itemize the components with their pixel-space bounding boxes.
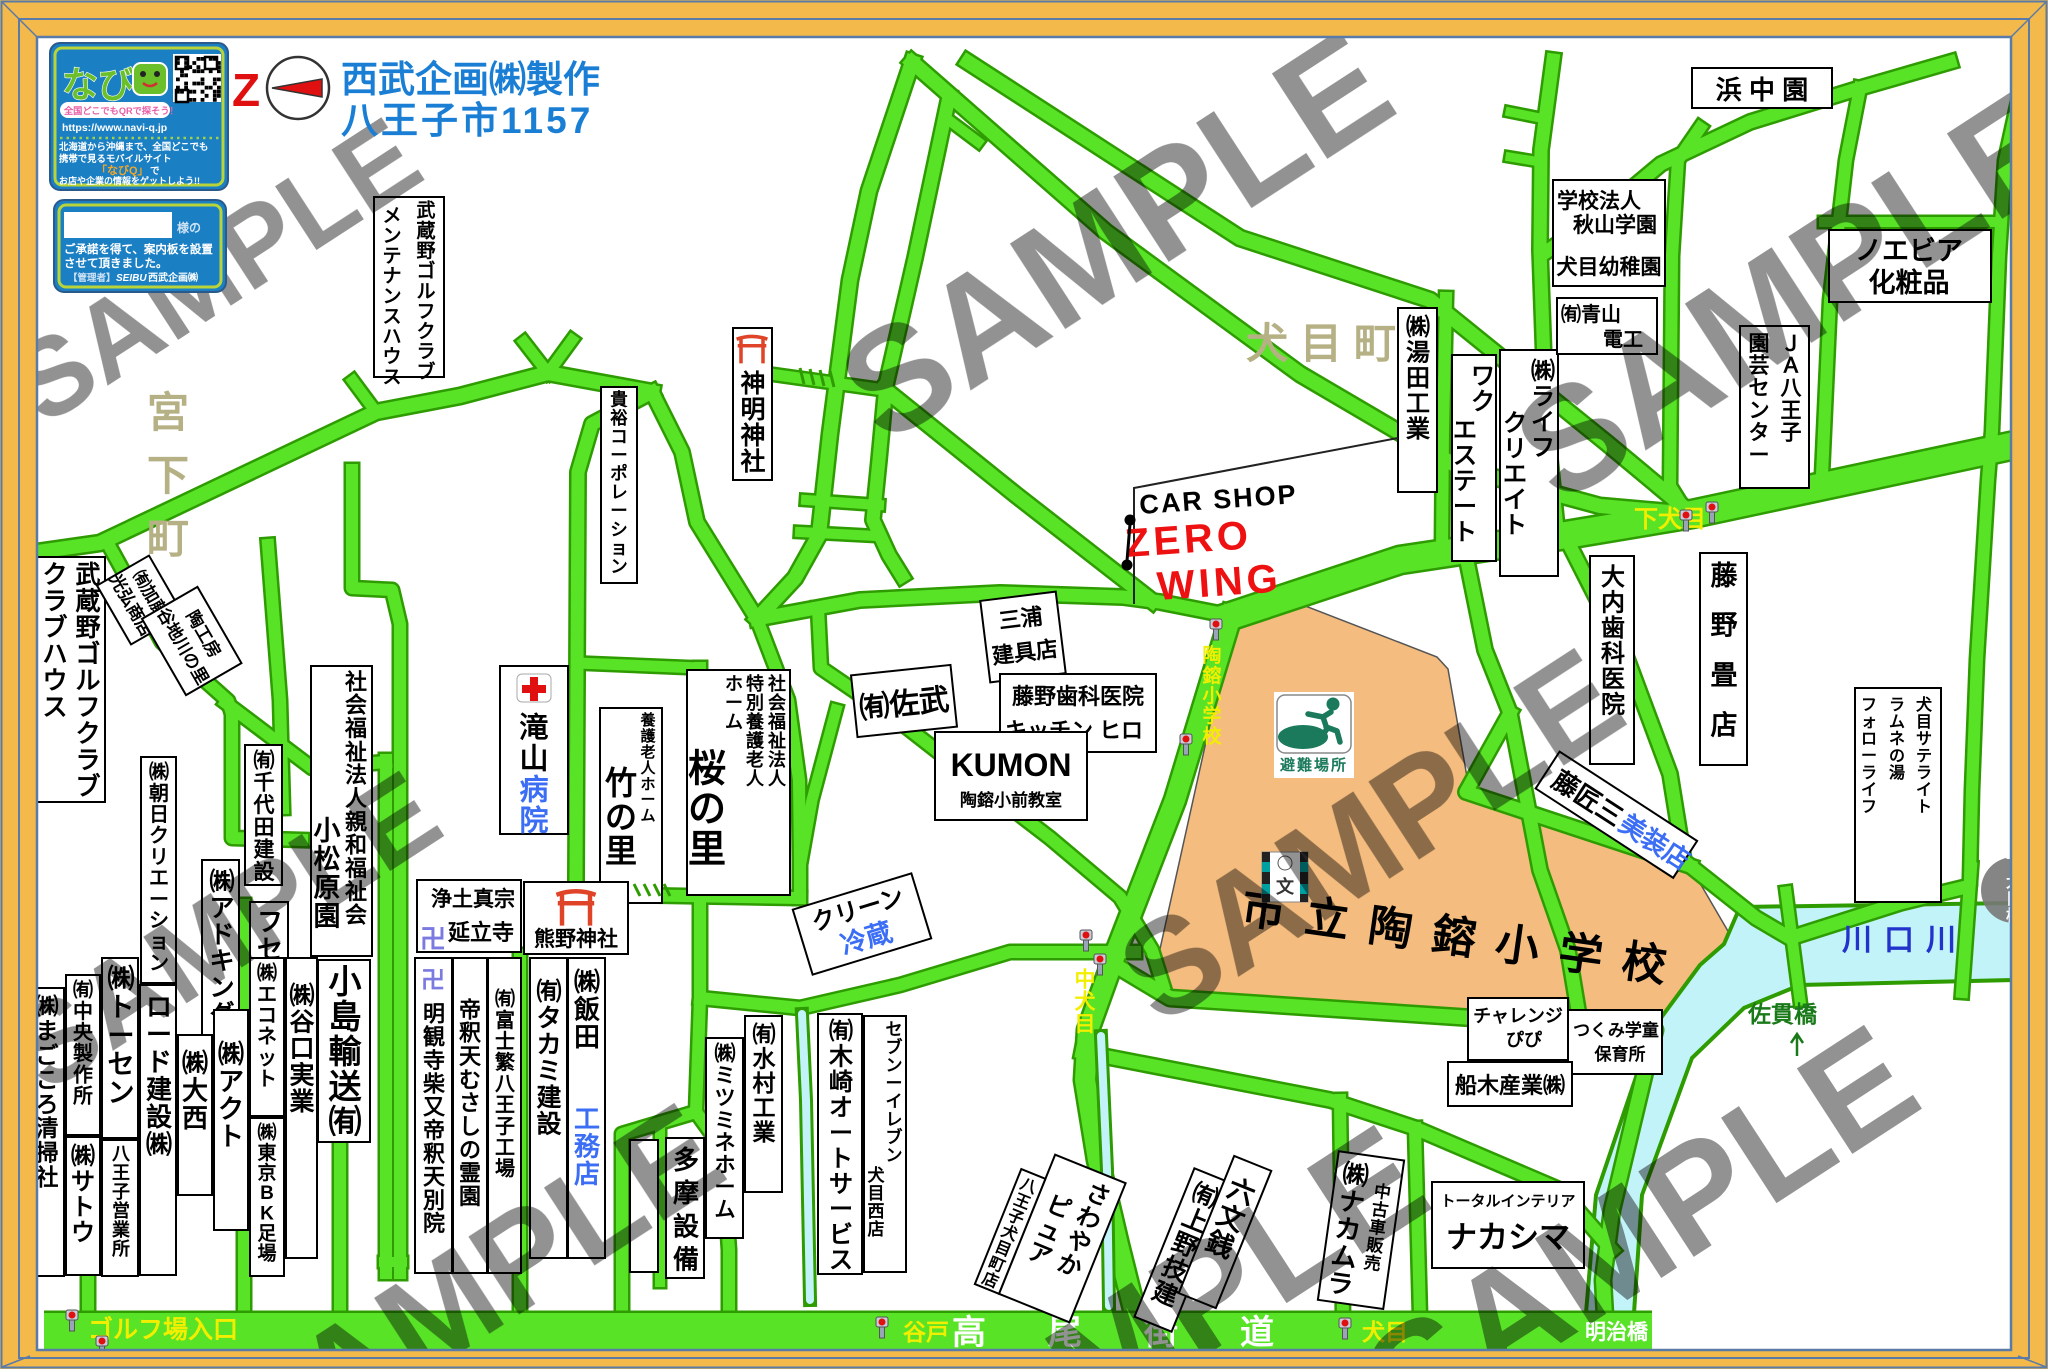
svg-text:チャレンジ: チャレンジ: [1473, 1006, 1563, 1026]
svg-text:㈲タカミ建設: ㈲タカミ建設: [536, 978, 562, 1139]
svg-text:社会福祉法人: 社会福祉法人: [767, 673, 787, 789]
svg-text:㈱大西: ㈱大西: [182, 1048, 208, 1133]
svg-text:携帯で見るモバイルサイト: 携帯で見るモバイルサイト: [59, 153, 172, 164]
svg-text:Z: Z: [232, 64, 260, 116]
svg-text:陶鎔小学校: 陶鎔小学校: [1202, 644, 1222, 748]
svg-text:㈱アクト: ㈱アクト: [218, 1039, 244, 1152]
svg-text:つくみ学童: つくみ学童: [1573, 1020, 1659, 1040]
svg-text:特別養護老人: 特別養護老人: [745, 673, 765, 789]
svg-text:武蔵野ゴルフクラブ: 武蔵野ゴルフクラブ: [75, 561, 100, 801]
svg-text:㈱湯田工業: ㈱湯田工業: [1406, 314, 1430, 443]
svg-text:貴裕コーポレーション: 貴裕コーポレーション: [609, 389, 628, 576]
svg-text:犬目幼稚園: 犬目幼稚園: [1557, 255, 1662, 279]
svg-text:ご承諾を得て、案内板を設置: ご承諾を得て、案内板を設置: [64, 242, 213, 256]
svg-text:様の: 様の: [177, 220, 201, 235]
svg-text:西武企画㈱: 西武企画㈱: [148, 271, 198, 284]
svg-text:卍: 卍: [421, 967, 445, 994]
svg-text:お店や企業の情報をゲットしよう!!: お店や企業の情報をゲットしよう!!: [59, 175, 200, 186]
svg-text:犬目西店: 犬目西店: [868, 1165, 886, 1239]
svg-text:三浦: 三浦: [997, 604, 1044, 634]
svg-text:させて頂きました。: させて頂きました。: [64, 257, 168, 270]
svg-text:桜の里: 桜の里: [688, 748, 726, 871]
svg-text:犬目サテライト: 犬目サテライト: [1916, 695, 1933, 816]
svg-text:㈲木崎オートサービス: ㈲木崎オートサービス: [828, 1018, 854, 1274]
svg-text:陶鎔小前教室: 陶鎔小前教室: [960, 790, 1062, 810]
svg-text:宮下町: 宮下町: [147, 389, 189, 562]
svg-text:㈱飯田: ㈱飯田: [574, 967, 600, 1052]
svg-text:明観寺柴又帝釈天別院: 明観寺柴又帝釈天別院: [422, 1001, 446, 1236]
svg-text:㈲水村工業: ㈲水村工業: [752, 1021, 777, 1145]
svg-text:ZERO: ZERO: [1124, 513, 1254, 566]
svg-text:学校法人: 学校法人: [1557, 189, 1641, 213]
svg-text:㈱サトウ: ㈱サトウ: [71, 1143, 95, 1246]
svg-text:https://www.navi-q.jp: https://www.navi-q.jp: [62, 122, 167, 134]
svg-text:竹の里: 竹の里: [605, 765, 637, 869]
svg-text:八王子市1157: 八王子市1157: [341, 99, 593, 141]
svg-text:セブンーイレブン: セブンーイレブン: [886, 1020, 903, 1165]
svg-text:延立寺: 延立寺: [447, 920, 514, 945]
svg-text:下犬目: 下犬目: [1634, 506, 1706, 533]
svg-text:武蔵野ゴルフクラブ: 武蔵野ゴルフクラブ: [416, 200, 435, 383]
svg-text:滝山: 滝山: [519, 712, 548, 776]
svg-text:㈱谷口実業: ㈱谷口実業: [289, 982, 315, 1116]
svg-text:ラムネの湯: ラムネの湯: [1889, 697, 1905, 782]
svg-text:犬目町: 犬目町: [1246, 320, 1408, 367]
svg-text:保育所: 保育所: [1594, 1044, 1646, 1064]
svg-text:浜 中 園: 浜 中 園: [1716, 75, 1808, 105]
svg-text:なび: なび: [62, 64, 134, 105]
svg-text:谷戸: 谷戸: [903, 1319, 949, 1345]
svg-text:北海道から沖縄まで、全国どこでも: 北海道から沖縄まで、全国どこでも: [59, 141, 208, 152]
svg-text:養護老人ホーム: 養護老人ホーム: [639, 711, 656, 824]
svg-text:【管理者】: 【管理者】: [68, 272, 116, 284]
svg-text:フォローライフ: フォローライフ: [1861, 697, 1877, 816]
svg-text:ぴぴ: ぴぴ: [1506, 1030, 1542, 1050]
svg-text:SEIBU: SEIBU: [116, 273, 147, 284]
svg-text:ゴルフ場入口: ゴルフ場入口: [88, 1315, 238, 1344]
svg-text:熊野神社: 熊野神社: [534, 927, 618, 951]
svg-text:卍: 卍: [420, 924, 446, 954]
svg-text:西武企画㈱製作: 西武企画㈱製作: [341, 58, 600, 100]
svg-text:浄土真宗: 浄土真宗: [431, 887, 515, 911]
svg-text:WING: WING: [1156, 556, 1284, 609]
svg-text:全国どこでもQRで探そう！: 全国どこでもQRで探そう！: [63, 105, 179, 116]
svg-text:川口川: 川口川: [1842, 924, 1968, 957]
svg-text:㈲富士繁八王子工場: ㈲富士繁八王子工場: [495, 988, 516, 1181]
svg-text:船木産業㈱: 船木産業㈱: [1455, 1073, 1565, 1098]
svg-text:佐貫橋: 佐貫橋: [1747, 1001, 1818, 1027]
svg-text:中犬目: 中犬目: [1075, 968, 1097, 1036]
svg-text:神明神社: 神明神社: [740, 370, 765, 476]
svg-text:エステート: エステート: [1453, 417, 1477, 546]
svg-text:クラブハウス: クラブハウス: [42, 561, 67, 722]
svg-text:八王子営業所: 八王子営業所: [111, 1144, 131, 1259]
svg-text:小島輸送㈲: 小島輸送㈲: [329, 963, 363, 1140]
svg-text:秋山学園: 秋山学園: [1573, 213, 1657, 237]
svg-text:KUMON: KUMON: [951, 747, 1072, 783]
svg-text:病院: 病院: [519, 774, 548, 838]
svg-text:ワク: ワク: [1471, 363, 1495, 415]
svg-text:藤野歯科医院: 藤野歯科医院: [1012, 684, 1144, 709]
svg-text:「なびQ」: 「なびQ」: [96, 163, 149, 177]
svg-text:ホーム: ホーム: [725, 674, 743, 732]
svg-text:帝釈天むさしの霊園: 帝釈天むさしの霊園: [459, 997, 482, 1209]
